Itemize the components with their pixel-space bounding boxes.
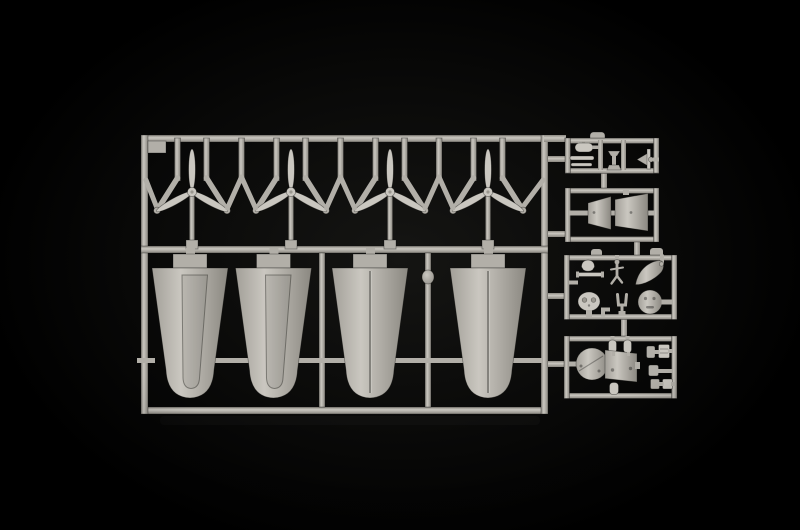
sprue-photo: Light grey injection-moulded plastic mod… — [0, 0, 800, 530]
photo-background: Light grey injection-moulded plastic mod… — [0, 0, 800, 530]
vignette-overlay — [0, 0, 800, 530]
